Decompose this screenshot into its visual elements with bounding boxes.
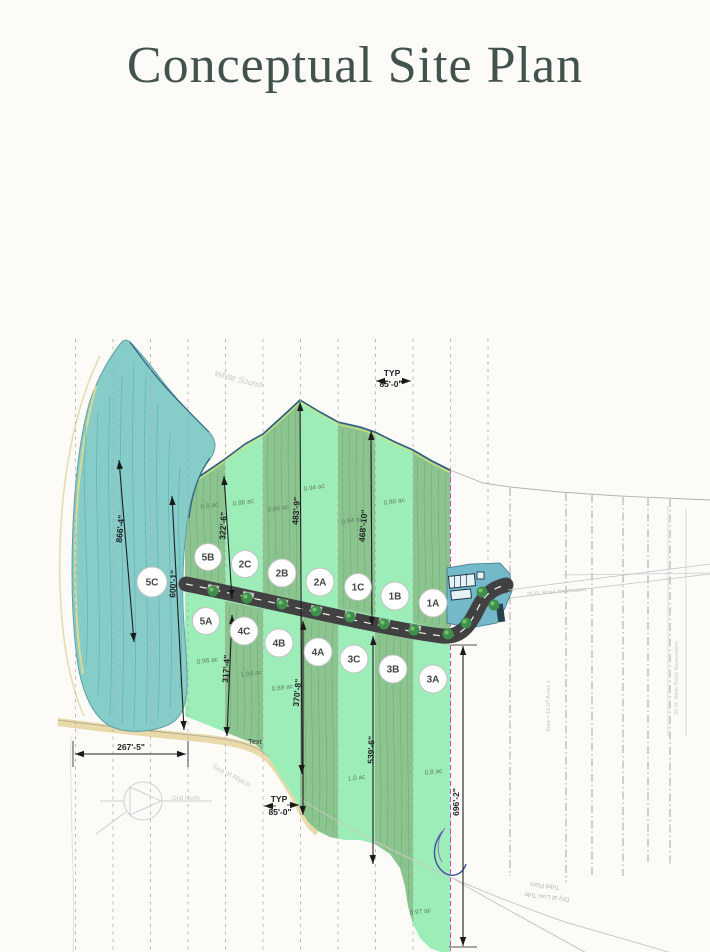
tree-highlight <box>210 588 214 592</box>
north-boundary-line <box>450 470 710 500</box>
tree-icon <box>311 606 322 617</box>
tree-icon <box>461 618 472 629</box>
lot-label: 2A <box>314 578 327 589</box>
typ-top-line2: 85'-0" <box>379 379 402 389</box>
dim-label-267: 267'-5" <box>117 742 145 752</box>
tree-highlight <box>463 620 467 624</box>
arrowhead-icon <box>460 937 466 946</box>
grid-north-label: Grid North <box>172 796 200 802</box>
lot-label: 2B <box>276 569 289 580</box>
text-note-label: Text <box>248 737 263 746</box>
tree-highlight <box>491 602 495 606</box>
lot-marker-5B: 5B <box>195 544 222 571</box>
tree-icon <box>409 625 420 636</box>
lot-marker-1B: 1B <box>381 582 409 610</box>
lot-label: 1B <box>389 592 402 603</box>
dock-shed <box>477 572 484 579</box>
tree-highlight <box>244 595 248 599</box>
tree-icon <box>379 619 390 630</box>
lot-marker-3B: 3B <box>379 655 407 683</box>
site-plan-page: Conceptual Site Plan <box>0 36 710 952</box>
water-name-label: White Sound <box>214 368 264 390</box>
area-note-label: Area = 10.07 Acres ± <box>546 680 552 731</box>
tree-icon <box>208 586 219 597</box>
arrowhead-icon <box>180 721 187 730</box>
tree-highlight <box>411 627 415 631</box>
tree-highlight <box>479 589 483 593</box>
tree-highlight <box>445 631 449 635</box>
tidal-shoreline-lower <box>452 878 707 952</box>
tree-highlight <box>313 608 317 612</box>
dim-label-696: 696'-2" <box>451 788 461 816</box>
lot-marker-5A: 5A <box>193 608 220 635</box>
lot-label: 2C <box>239 560 252 571</box>
lot-marker-4A: 4A <box>304 638 332 666</box>
typ-bottom-line1: TYP <box>271 794 288 804</box>
tree-icon <box>443 629 454 640</box>
tree-highlight <box>347 614 351 618</box>
arrowhead-icon <box>460 646 466 655</box>
sea-name-label: Sea of Abaco <box>211 764 251 789</box>
tidal-flats-label-2: Dry at Low Tide <box>524 890 570 902</box>
lot-marker-5C: 5C <box>137 567 167 597</box>
lot-label: 4C <box>238 627 251 638</box>
lot-label: 5C <box>146 578 159 589</box>
arrowhead-icon <box>177 751 186 757</box>
lot-marker-4B: 4B <box>265 629 293 657</box>
lot-label: 1C <box>352 583 365 594</box>
site-plan-drawing: 866'-4" 600'-1" 322'-6" 483'-9" 468'-10"… <box>0 176 710 952</box>
tree-icon <box>277 599 288 610</box>
west-shoreline-faint <box>71 736 74 952</box>
lot-marker-2A: 2A <box>306 568 334 596</box>
compass-north-arrow <box>130 787 161 815</box>
tidal-flats-label-1: Tidal Flats <box>529 880 560 891</box>
tree-icon <box>477 587 488 598</box>
tree-icon <box>345 612 356 623</box>
lot-label: 1A <box>427 599 440 610</box>
east-parcel-lines <box>450 470 710 882</box>
dock-building <box>448 574 475 589</box>
lot-marker-3C: 3C <box>340 645 368 673</box>
page-title: Conceptual Site Plan <box>0 36 710 95</box>
dim-label-483: 483'-9" <box>290 497 302 525</box>
dash-dot-lines <box>510 488 670 882</box>
lot-label: 4B <box>273 639 286 650</box>
tree-highlight <box>279 601 283 605</box>
dim-label-539: 539'-6" <box>366 736 377 764</box>
dim-label-600: 600'-1" <box>167 570 178 598</box>
tree-highlight <box>381 621 385 625</box>
lot-label: 3A <box>427 675 440 686</box>
compass-tail-line <box>96 812 126 834</box>
lot-marker-3A: 3A <box>419 665 447 693</box>
road-reservation-20-label: 20 Ft. Wide Road Reservation <box>674 641 680 715</box>
arrowhead-icon <box>402 378 411 384</box>
arrowhead-icon <box>369 855 376 864</box>
lot-label: 5A <box>200 617 213 628</box>
lot-marker-1C: 1C <box>345 574 372 601</box>
tree-icon <box>489 600 500 611</box>
lot-label: 4A <box>312 648 325 659</box>
lot-marker-2C: 2C <box>232 551 259 578</box>
typ-top-line1: TYP <box>384 368 401 378</box>
lot-marker-4C: 4C <box>230 617 258 645</box>
lot-marker-2B: 2B <box>268 559 296 587</box>
typ-bottom-line2: 85'-0" <box>268 807 291 817</box>
arrowhead-icon <box>75 751 84 757</box>
lot-label: 3C <box>348 655 361 666</box>
dim-label-322: 322'-6" <box>217 512 228 540</box>
lot-label: 5B <box>202 553 215 564</box>
dock-building-2 <box>451 589 472 600</box>
road-reservation-25-label: 25 Ft. Road Reservation <box>527 587 587 598</box>
dim-label-317: 317'-4" <box>220 655 232 683</box>
lot-marker-1A: 1A <box>419 589 447 617</box>
tree-icon <box>242 593 253 604</box>
lot-label: 3B <box>387 665 400 676</box>
